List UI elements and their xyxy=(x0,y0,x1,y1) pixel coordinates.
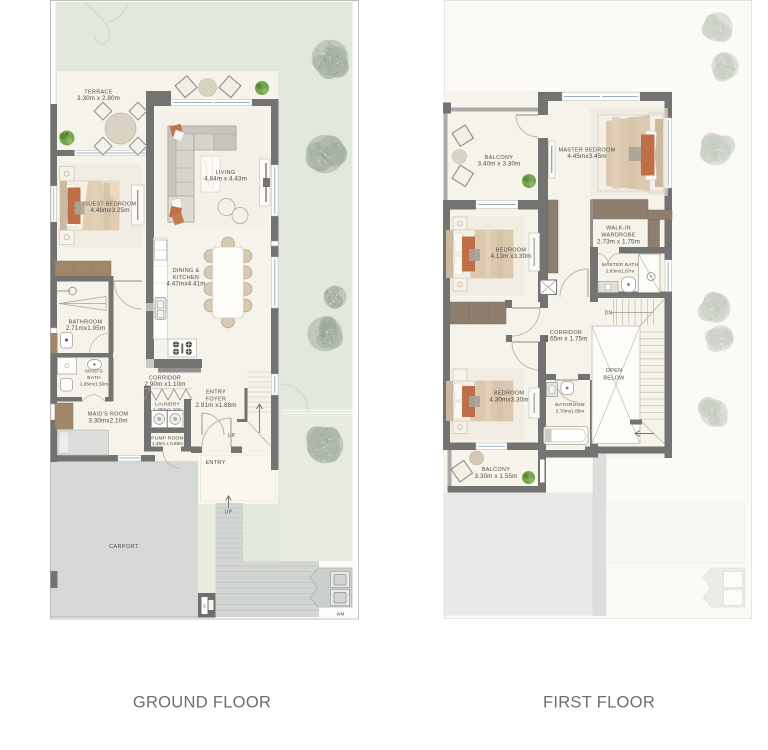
svg-text:4.48mx3.25m: 4.48mx3.25m xyxy=(90,207,129,214)
svg-text:4.47mx4.41m: 4.47mx4.41m xyxy=(166,281,205,288)
svg-text:BATH: BATH xyxy=(87,375,101,381)
svg-text:GROUND FLOOR: GROUND FLOOR xyxy=(133,694,271,712)
svg-text:MASTER BATH: MASTER BATH xyxy=(602,262,639,268)
svg-text:4.30mx3.30m: 4.30mx3.30m xyxy=(489,397,528,404)
svg-text:3.30m x 2.80m: 3.30m x 2.80m xyxy=(77,95,120,102)
svg-text:BATHROOM: BATHROOM xyxy=(555,402,585,408)
svg-text:WALK-IN: WALK-IN xyxy=(606,226,631,232)
svg-text:2.70mx1.85m: 2.70mx1.85m xyxy=(556,409,584,414)
svg-text:1.45m x 0.65m: 1.45m x 0.65m xyxy=(152,441,183,446)
svg-text:4.45mx3.45m: 4.45mx3.45m xyxy=(567,153,606,160)
svg-text:UP: UP xyxy=(225,510,233,516)
svg-text:WM: WM xyxy=(337,612,345,617)
svg-text:4.13m x3.30m: 4.13m x3.30m xyxy=(490,253,531,260)
svg-text:ENTRY: ENTRY xyxy=(206,390,226,396)
svg-text:ENTRY: ENTRY xyxy=(205,460,225,466)
svg-text:4.84m x 4.43m: 4.84m x 4.43m xyxy=(204,176,247,183)
svg-text:2.65m x 1.75m: 2.65m x 1.75m xyxy=(545,336,588,343)
svg-text:OPEN: OPEN xyxy=(606,368,623,374)
svg-text:DINING &: DINING & xyxy=(173,268,200,274)
svg-text:3.30m x 1.55m: 3.30m x 1.55m xyxy=(475,473,518,480)
svg-text:2.91m x1.88m: 2.91m x1.88m xyxy=(195,402,236,409)
svg-text:S: S xyxy=(203,604,206,609)
svg-text:BELOW: BELOW xyxy=(603,376,625,382)
svg-text:UP: UP xyxy=(228,433,236,439)
svg-text:CARPORT: CARPORT xyxy=(109,544,139,550)
svg-text:MAID’S: MAID’S xyxy=(85,369,103,375)
svg-text:3.40m x 3.30m: 3.40m x 3.30m xyxy=(478,160,521,167)
svg-text:2.73m x 1.75m: 2.73m x 1.75m xyxy=(597,239,640,246)
svg-text:1.45mx1.10m: 1.45mx1.10m xyxy=(153,407,181,412)
svg-text:2.90m x1.10m: 2.90m x1.10m xyxy=(144,381,185,388)
svg-text:2.71mx1.95m: 2.71mx1.95m xyxy=(66,325,105,332)
svg-text:3.30mx2.10m: 3.30mx2.10m xyxy=(88,418,127,425)
svg-text:2.63mx1.67m: 2.63mx1.67m xyxy=(606,269,634,274)
svg-text:1.95mx1.50m: 1.95mx1.50m xyxy=(80,382,108,387)
svg-text:DN: DN xyxy=(605,311,613,317)
svg-text:FIRST FLOOR: FIRST FLOOR xyxy=(543,694,655,712)
